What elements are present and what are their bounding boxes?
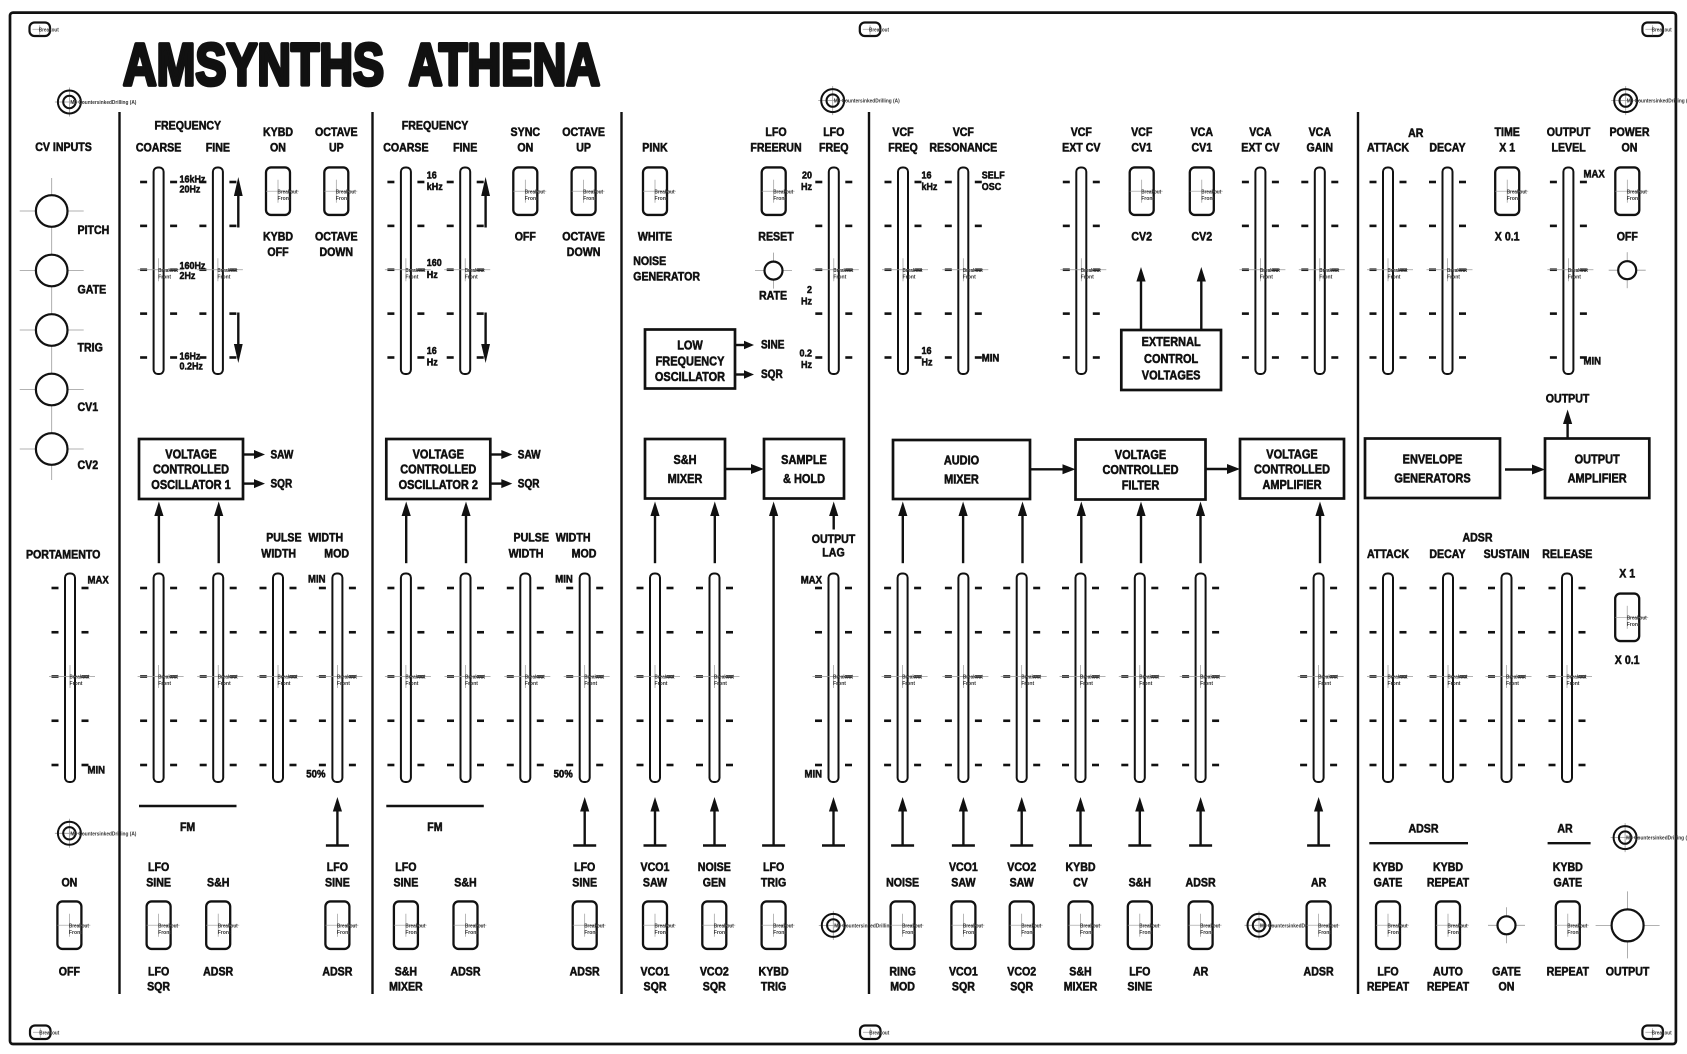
svg-text:KYBD: KYBD	[759, 965, 789, 979]
svg-text:SAMPLE: SAMPLE	[781, 453, 827, 467]
svg-text:ADSR: ADSR	[322, 965, 352, 979]
svg-text:Breakout: Breakout	[405, 923, 425, 929]
svg-text:Breakout: Breakout	[69, 923, 89, 929]
svg-text:Front: Front	[584, 930, 597, 936]
svg-text:SQR: SQR	[761, 369, 783, 381]
svg-text:Front: Front	[655, 681, 668, 687]
svg-text:MIN: MIN	[982, 352, 1000, 364]
svg-text:VCO1: VCO1	[949, 860, 978, 874]
svg-text:Breakout: Breakout	[869, 27, 889, 33]
svg-text:M3 CountersinkedDrilling (A): M3 CountersinkedDrilling (A)	[834, 99, 900, 105]
svg-text:ADSR: ADSR	[1186, 875, 1216, 889]
svg-text:Breakout: Breakout	[1652, 27, 1672, 33]
svg-text:MIXER: MIXER	[668, 472, 703, 486]
svg-text:Front: Front	[158, 681, 171, 687]
svg-text:Breakout: Breakout	[278, 189, 298, 195]
svg-text:Breakout: Breakout	[525, 675, 545, 681]
svg-text:Front: Front	[584, 681, 597, 687]
svg-text:Front: Front	[158, 274, 171, 280]
svg-text:OUTPUT: OUTPUT	[812, 532, 856, 546]
svg-text:Front: Front	[1448, 681, 1461, 687]
svg-text:Front: Front	[1260, 274, 1273, 280]
svg-text:VOLTAGE: VOLTAGE	[1266, 447, 1317, 461]
svg-text:S&H: S&H	[673, 453, 696, 467]
svg-text:SAW: SAW	[518, 449, 541, 461]
svg-text:Front: Front	[465, 930, 478, 936]
svg-text:Breakout: Breakout	[1568, 268, 1588, 274]
svg-text:Front: Front	[158, 930, 171, 936]
svg-text:Front: Front	[1567, 930, 1580, 936]
svg-text:Front: Front	[217, 274, 230, 280]
svg-text:AR: AR	[1311, 875, 1326, 889]
svg-text:Breakout: Breakout	[1388, 923, 1408, 929]
svg-text:Breakout: Breakout	[1567, 923, 1587, 929]
svg-text:VCO1: VCO1	[949, 965, 978, 979]
svg-text:Front: Front	[1627, 196, 1640, 202]
svg-text:AR: AR	[1408, 126, 1423, 140]
svg-text:Hz: Hz	[922, 358, 933, 369]
svg-text:Front: Front	[405, 930, 418, 936]
svg-text:VOLTAGE: VOLTAGE	[413, 447, 464, 461]
svg-text:WHITE: WHITE	[638, 229, 672, 243]
svg-text:Breakout: Breakout	[465, 268, 485, 274]
svg-text:Front: Front	[903, 274, 916, 280]
svg-text:RING: RING	[889, 965, 916, 979]
svg-text:Front: Front	[1139, 930, 1152, 936]
svg-text:POWER: POWER	[1609, 125, 1649, 139]
svg-text:Hz: Hz	[427, 270, 438, 281]
svg-text:Front: Front	[773, 930, 786, 936]
svg-text:SQR: SQR	[518, 478, 540, 490]
svg-text:KYBD: KYBD	[263, 125, 293, 139]
svg-text:KYBD: KYBD	[263, 229, 293, 243]
svg-text:Front: Front	[1200, 930, 1213, 936]
svg-text:SQR: SQR	[703, 980, 726, 994]
svg-text:Front: Front	[714, 930, 727, 936]
svg-text:FREQUENCY: FREQUENCY	[155, 118, 222, 132]
svg-text:AR: AR	[1193, 965, 1208, 979]
svg-text:Front: Front	[1080, 930, 1093, 936]
svg-text:FILTER: FILTER	[1122, 478, 1160, 492]
svg-text:OSCILLATOR 1: OSCILLATOR 1	[151, 478, 230, 492]
svg-text:Breakout: Breakout	[1507, 189, 1527, 195]
svg-text:Breakout: Breakout	[1447, 268, 1467, 274]
svg-text:S&H: S&H	[395, 965, 417, 979]
svg-text:ADSR: ADSR	[1408, 822, 1438, 836]
svg-text:CONTROLLED: CONTROLLED	[400, 463, 476, 477]
svg-text:FREQ: FREQ	[888, 140, 918, 154]
svg-text:M3 CountersinkedDrilling (A): M3 CountersinkedDrilling (A)	[70, 100, 136, 106]
svg-text:OCTAVE: OCTAVE	[562, 125, 605, 139]
svg-text:OSC: OSC	[982, 182, 1002, 193]
svg-text:UP: UP	[329, 140, 344, 154]
svg-text:Front: Front	[963, 930, 976, 936]
svg-text:Breakout: Breakout	[902, 675, 922, 681]
svg-text:MIXER: MIXER	[389, 980, 423, 994]
svg-text:Front: Front	[1080, 681, 1093, 687]
svg-text:Breakout: Breakout	[1448, 923, 1468, 929]
svg-text:Breakout: Breakout	[902, 923, 922, 929]
svg-text:LFO: LFO	[763, 860, 784, 874]
svg-text:LOW: LOW	[677, 339, 703, 353]
svg-text:LFO: LFO	[327, 860, 348, 874]
svg-text:16: 16	[922, 171, 932, 182]
svg-text:VCF: VCF	[1071, 125, 1092, 139]
svg-text:Front: Front	[773, 196, 786, 202]
svg-text:Breakout: Breakout	[903, 268, 923, 274]
svg-text:Breakout: Breakout	[655, 675, 675, 681]
svg-text:Front: Front	[70, 681, 83, 687]
svg-text:TRIG: TRIG	[761, 980, 786, 994]
svg-text:Front: Front	[833, 274, 846, 280]
svg-text:CV2: CV2	[1192, 229, 1213, 243]
svg-text:OUTPUT: OUTPUT	[1547, 125, 1591, 139]
svg-text:CV1: CV1	[78, 400, 99, 414]
svg-text:SYNC: SYNC	[511, 125, 541, 139]
svg-text:Front: Front	[218, 681, 231, 687]
svg-text:CV2: CV2	[78, 458, 99, 472]
svg-text:Breakout: Breakout	[278, 675, 298, 681]
svg-text:AMSYNTHS: AMSYNTHS	[123, 32, 384, 98]
svg-text:MIN: MIN	[88, 765, 106, 777]
svg-text:SINE: SINE	[572, 875, 597, 889]
svg-text:GATE: GATE	[1553, 875, 1582, 889]
svg-text:Front: Front	[1507, 196, 1520, 202]
svg-text:160: 160	[427, 258, 442, 269]
svg-text:VCO2: VCO2	[1007, 860, 1036, 874]
svg-text:Front: Front	[405, 681, 418, 687]
svg-text:VCA: VCA	[1309, 125, 1332, 139]
svg-text:Breakout: Breakout	[1021, 923, 1041, 929]
svg-text:Breakout: Breakout	[158, 923, 178, 929]
svg-text:VOLTAGES: VOLTAGES	[1142, 368, 1201, 382]
svg-text:NOISE: NOISE	[698, 860, 731, 874]
svg-text:Front: Front	[1506, 681, 1519, 687]
svg-text:AMPLIFIER: AMPLIFIER	[1262, 478, 1321, 492]
svg-text:Front: Front	[218, 930, 231, 936]
svg-text:Breakout: Breakout	[337, 675, 357, 681]
svg-text:Front: Front	[278, 681, 291, 687]
svg-text:OCTAVE: OCTAVE	[315, 229, 358, 243]
svg-text:Front: Front	[69, 930, 82, 936]
svg-text:OCTAVE: OCTAVE	[315, 125, 358, 139]
svg-text:ATHENA: ATHENA	[409, 32, 600, 98]
svg-text:SINE: SINE	[1127, 980, 1152, 994]
svg-text:REPEAT: REPEAT	[1367, 980, 1410, 994]
svg-text:MIN: MIN	[308, 574, 326, 586]
svg-text:X 1: X 1	[1499, 140, 1515, 154]
svg-text:Front: Front	[1567, 681, 1580, 687]
svg-text:Breakout: Breakout	[1080, 675, 1100, 681]
svg-text:Breakout: Breakout	[1201, 189, 1221, 195]
svg-text:MAX: MAX	[88, 574, 110, 586]
svg-text:MAX: MAX	[1584, 168, 1606, 180]
svg-text:MIXER: MIXER	[944, 473, 979, 487]
svg-text:MOD: MOD	[324, 547, 349, 561]
svg-text:Front: Front	[1021, 930, 1034, 936]
svg-text:SQR: SQR	[952, 980, 975, 994]
svg-text:0.2Hz: 0.2Hz	[180, 362, 203, 373]
svg-text:LEVEL: LEVEL	[1552, 140, 1587, 154]
svg-text:CONTROL: CONTROL	[1144, 352, 1198, 366]
svg-text:Front: Front	[465, 681, 478, 687]
svg-text:Breakout: Breakout	[714, 923, 734, 929]
svg-text:Breakout: Breakout	[869, 1030, 889, 1036]
svg-text:& HOLD: & HOLD	[783, 472, 825, 486]
svg-text:Breakout: Breakout	[1567, 675, 1587, 681]
svg-text:SQR: SQR	[147, 980, 170, 994]
svg-text:SQR: SQR	[271, 478, 293, 490]
svg-text:Front: Front	[1318, 930, 1331, 936]
svg-text:Front: Front	[583, 196, 596, 202]
svg-text:kHz: kHz	[922, 182, 938, 193]
svg-text:LFO: LFO	[765, 125, 786, 139]
svg-text:LFO: LFO	[148, 965, 169, 979]
svg-text:Front: Front	[1448, 930, 1461, 936]
svg-text:OUTPUT: OUTPUT	[1606, 965, 1650, 979]
svg-text:Breakout: Breakout	[773, 923, 793, 929]
svg-text:ENVELOPE: ENVELOPE	[1403, 453, 1463, 467]
svg-text:VCO2: VCO2	[1007, 965, 1036, 979]
svg-text:50%: 50%	[306, 769, 325, 781]
svg-text:M3 CountersinkedDrilling (A): M3 CountersinkedDrilling (A)	[1626, 836, 1687, 842]
svg-text:FM: FM	[427, 820, 442, 834]
svg-text:VCF: VCF	[1131, 125, 1152, 139]
svg-text:ADSR: ADSR	[450, 965, 480, 979]
svg-text:MIXER: MIXER	[1064, 980, 1098, 994]
svg-text:Breakout: Breakout	[525, 189, 545, 195]
svg-text:MIN: MIN	[1584, 356, 1602, 368]
svg-text:DOWN: DOWN	[320, 245, 354, 259]
svg-text:20Hz: 20Hz	[180, 185, 201, 196]
svg-text:16: 16	[922, 346, 932, 357]
svg-text:GAIN: GAIN	[1307, 140, 1334, 154]
svg-text:Hz: Hz	[801, 360, 812, 371]
svg-text:FINE: FINE	[206, 140, 230, 154]
svg-text:EXTERNAL: EXTERNAL	[1142, 335, 1201, 349]
svg-text:MOD: MOD	[572, 547, 597, 561]
svg-text:Breakout: Breakout	[465, 675, 485, 681]
svg-text:Front: Front	[1388, 681, 1401, 687]
svg-text:CONTROLLED: CONTROLLED	[1254, 463, 1330, 477]
svg-text:NOISE: NOISE	[633, 254, 666, 268]
svg-text:S&H: S&H	[1069, 965, 1091, 979]
svg-text:EXT CV: EXT CV	[1062, 140, 1101, 154]
svg-text:REPEAT: REPEAT	[1427, 980, 1470, 994]
svg-text:GATE: GATE	[78, 283, 107, 297]
svg-text:Breakout: Breakout	[465, 923, 485, 929]
svg-text:Breakout: Breakout	[963, 268, 983, 274]
svg-text:RESET: RESET	[758, 229, 794, 243]
svg-text:S&H: S&H	[207, 875, 229, 889]
svg-text:PULSE: PULSE	[514, 530, 549, 544]
svg-text:Breakout: Breakout	[1318, 923, 1338, 929]
svg-text:ADSR: ADSR	[203, 965, 233, 979]
svg-text:Front: Front	[902, 930, 915, 936]
svg-text:TRIG: TRIG	[78, 341, 103, 355]
svg-text:FREERUN: FREERUN	[750, 140, 801, 154]
svg-text:Front: Front	[902, 681, 915, 687]
svg-text:VOLTAGE: VOLTAGE	[1115, 448, 1166, 462]
svg-text:Breakout: Breakout	[218, 675, 238, 681]
svg-text:KYBD: KYBD	[1553, 860, 1583, 874]
svg-text:ON: ON	[517, 140, 533, 154]
svg-text:Breakout: Breakout	[336, 189, 356, 195]
svg-text:COARSE: COARSE	[136, 140, 181, 154]
svg-text:CV INPUTS: CV INPUTS	[35, 140, 92, 154]
svg-text:Breakout: Breakout	[405, 675, 425, 681]
svg-text:Front: Front	[1627, 622, 1640, 628]
svg-text:PITCH: PITCH	[78, 223, 110, 237]
svg-text:Front: Front	[655, 196, 668, 202]
svg-text:S&H: S&H	[1129, 875, 1151, 889]
svg-text:Breakout: Breakout	[70, 675, 90, 681]
svg-text:SAW: SAW	[643, 875, 668, 889]
svg-text:OFF: OFF	[267, 245, 288, 259]
svg-text:NOISE: NOISE	[886, 875, 919, 889]
svg-text:ON: ON	[1499, 980, 1515, 994]
svg-text:Breakout: Breakout	[584, 675, 604, 681]
svg-text:Front: Front	[1568, 274, 1581, 280]
svg-text:Breakout: Breakout	[773, 189, 793, 195]
svg-text:GATE: GATE	[1492, 965, 1521, 979]
svg-text:MAX: MAX	[801, 574, 823, 586]
svg-text:FREQUENCY: FREQUENCY	[402, 118, 469, 132]
svg-text:Breakout: Breakout	[1080, 923, 1100, 929]
svg-text:Front: Front	[1139, 681, 1152, 687]
svg-text:Breakout: Breakout	[1388, 268, 1408, 274]
svg-text:CONTROLLED: CONTROLLED	[153, 463, 229, 477]
svg-text:Front: Front	[1388, 930, 1401, 936]
svg-text:Front: Front	[1081, 274, 1094, 280]
svg-text:ATTACK: ATTACK	[1367, 141, 1409, 155]
svg-text:Hz: Hz	[427, 358, 438, 369]
svg-text:RESONANCE: RESONANCE	[929, 140, 997, 154]
svg-text:LAG: LAG	[822, 546, 844, 560]
svg-text:TRIG: TRIG	[761, 875, 786, 889]
svg-text:FREQUENCY: FREQUENCY	[656, 354, 725, 368]
svg-text:Front: Front	[714, 681, 727, 687]
svg-text:Breakout: Breakout	[218, 923, 238, 929]
svg-text:KYBD: KYBD	[1373, 860, 1403, 874]
svg-text:OUTPUT: OUTPUT	[1546, 392, 1590, 406]
svg-text:UP: UP	[576, 140, 591, 154]
svg-text:Front: Front	[278, 196, 291, 202]
svg-text:CV1: CV1	[1192, 140, 1213, 154]
svg-text:X 1: X 1	[1619, 567, 1635, 581]
svg-text:AMPLIFIER: AMPLIFIER	[1568, 471, 1627, 485]
svg-text:Breakout: Breakout	[1081, 268, 1101, 274]
svg-text:Breakout: Breakout	[1021, 675, 1041, 681]
svg-text:KYBD: KYBD	[1433, 860, 1463, 874]
svg-text:Front: Front	[1319, 274, 1332, 280]
svg-text:Breakout: Breakout	[1139, 675, 1159, 681]
svg-text:Breakout: Breakout	[1388, 675, 1408, 681]
svg-text:Breakout: Breakout	[158, 675, 178, 681]
svg-text:0.2: 0.2	[800, 349, 813, 360]
svg-text:COARSE: COARSE	[383, 140, 428, 154]
svg-text:Breakout: Breakout	[655, 923, 675, 929]
svg-text:Breakout: Breakout	[584, 923, 604, 929]
svg-text:Breakout: Breakout	[1319, 268, 1339, 274]
svg-text:Breakout: Breakout	[963, 675, 983, 681]
svg-text:DOWN: DOWN	[567, 245, 601, 259]
svg-text:WIDTH: WIDTH	[308, 530, 343, 544]
svg-text:Breakout: Breakout	[1627, 189, 1647, 195]
svg-text:LFO: LFO	[1129, 965, 1150, 979]
svg-text:Front: Front	[963, 681, 976, 687]
svg-text:20: 20	[802, 171, 812, 182]
svg-text:SAW: SAW	[1010, 875, 1035, 889]
svg-text:GENERATOR: GENERATOR	[633, 269, 700, 283]
svg-text:LFO: LFO	[148, 860, 169, 874]
svg-text:CV2: CV2	[1131, 229, 1152, 243]
svg-text:AR: AR	[1557, 822, 1572, 836]
svg-text:16: 16	[427, 346, 437, 357]
svg-text:Breakout: Breakout	[1318, 675, 1338, 681]
svg-text:LFO: LFO	[395, 860, 416, 874]
svg-text:Breakout: Breakout	[1141, 189, 1161, 195]
svg-text:Breakout: Breakout	[833, 675, 853, 681]
svg-text:OCTAVE: OCTAVE	[562, 229, 605, 243]
svg-text:SQR: SQR	[1010, 980, 1033, 994]
svg-text:DECAY: DECAY	[1429, 547, 1465, 561]
svg-text:AUTO: AUTO	[1433, 965, 1463, 979]
svg-text:50%: 50%	[554, 769, 573, 781]
svg-text:Front: Front	[1388, 274, 1401, 280]
svg-text:Breakout: Breakout	[1200, 675, 1220, 681]
svg-text:Breakout: Breakout	[158, 268, 178, 274]
svg-text:AUDIO: AUDIO	[944, 454, 979, 468]
svg-text:GENERATORS: GENERATORS	[1394, 471, 1470, 485]
svg-text:Front: Front	[655, 930, 668, 936]
svg-text:Breakout: Breakout	[39, 27, 59, 33]
svg-text:WIDTH: WIDTH	[556, 530, 591, 544]
svg-text:Front: Front	[336, 196, 349, 202]
svg-text:Breakout: Breakout	[833, 268, 853, 274]
svg-text:ATTACK: ATTACK	[1367, 547, 1409, 561]
svg-text:Front: Front	[337, 930, 350, 936]
svg-text:SINE: SINE	[761, 340, 785, 352]
svg-text:2: 2	[807, 285, 812, 296]
svg-text:SUSTAIN: SUSTAIN	[1484, 547, 1530, 561]
svg-text:OFF: OFF	[515, 229, 536, 243]
svg-text:OFF: OFF	[59, 965, 80, 979]
svg-text:PINK: PINK	[642, 140, 668, 154]
svg-text:SELF: SELF	[982, 171, 1005, 182]
svg-text:M3 CountersinkedDrilling (A): M3 CountersinkedDrilling (A)	[1627, 99, 1687, 105]
svg-text:REPEAT: REPEAT	[1427, 875, 1470, 889]
svg-text:WIDTH: WIDTH	[261, 547, 296, 561]
svg-text:Breakout: Breakout	[583, 189, 603, 195]
svg-text:OSCILLATOR: OSCILLATOR	[655, 370, 725, 384]
svg-text:FM: FM	[180, 820, 195, 834]
svg-text:Hz: Hz	[801, 182, 812, 193]
svg-text:M3 CountersinkedDrilling (A): M3 CountersinkedDrilling (A)	[70, 831, 136, 837]
svg-text:Breakout: Breakout	[1506, 675, 1526, 681]
svg-text:RELEASE: RELEASE	[1542, 547, 1592, 561]
svg-text:KYBD: KYBD	[1065, 860, 1095, 874]
svg-text:RATE: RATE	[759, 289, 787, 303]
svg-text:SQR: SQR	[644, 980, 667, 994]
svg-text:Breakout: Breakout	[1200, 923, 1220, 929]
svg-text:Breakout: Breakout	[337, 923, 357, 929]
svg-text:TIME: TIME	[1495, 125, 1520, 139]
svg-text:Front: Front	[1447, 274, 1460, 280]
svg-text:Breakout: Breakout	[655, 189, 675, 195]
svg-text:ON: ON	[270, 140, 286, 154]
svg-text:ON: ON	[1622, 140, 1638, 154]
